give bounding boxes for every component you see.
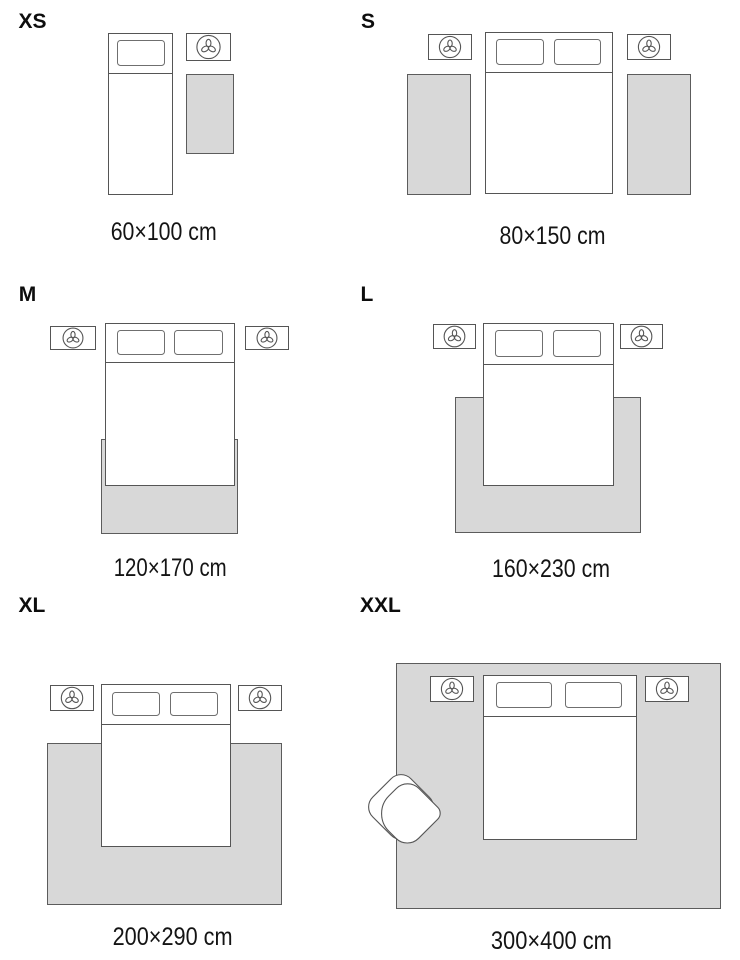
svg-text:XXL: XXL <box>360 594 401 617</box>
svg-text:160×230 cm: 160×230 cm <box>492 555 610 583</box>
svg-text:200×290 cm: 200×290 cm <box>113 923 233 951</box>
svg-text:XS: XS <box>19 10 47 33</box>
svg-text:M: M <box>19 283 37 306</box>
svg-text:120×170 cm: 120×170 cm <box>114 554 227 582</box>
svg-text:S: S <box>361 10 375 33</box>
svg-text:L: L <box>361 283 374 306</box>
svg-text:80×150 cm: 80×150 cm <box>500 222 606 250</box>
svg-text:XL: XL <box>19 594 46 617</box>
svg-text:60×100 cm: 60×100 cm <box>111 218 217 246</box>
svg-text:300×400 cm: 300×400 cm <box>491 927 612 955</box>
